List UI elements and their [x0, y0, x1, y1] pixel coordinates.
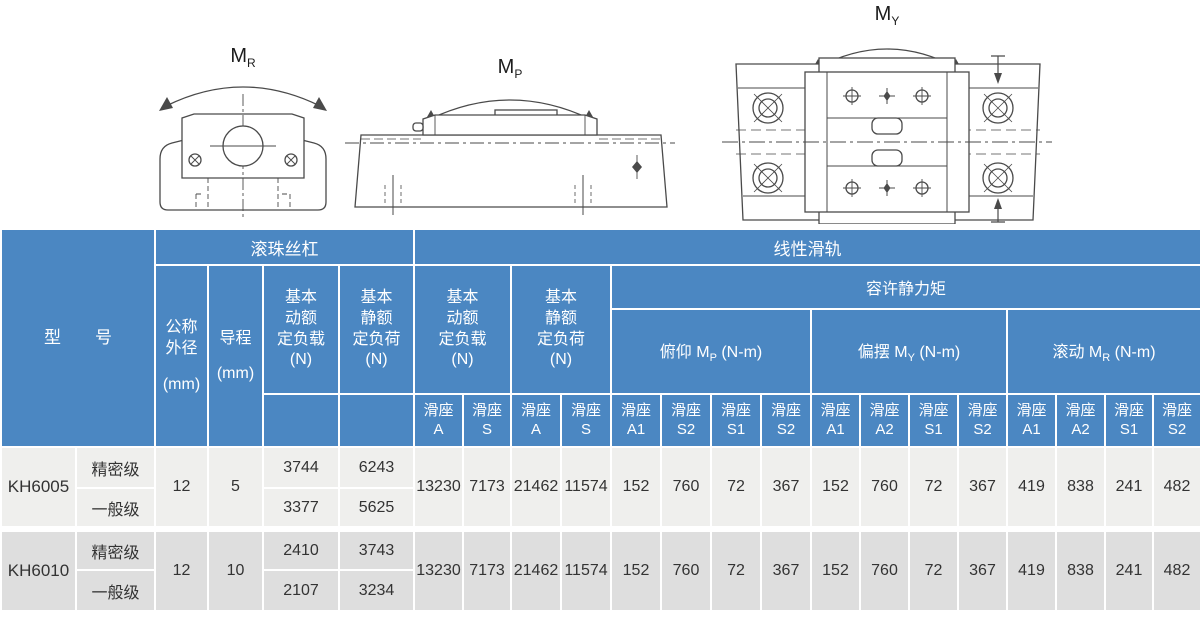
value-cell: 2410	[263, 529, 339, 570]
header-slide-col: 滑座 S2	[1153, 394, 1200, 447]
roll-moment-label: MR	[148, 44, 338, 68]
value-cell: 367	[958, 529, 1007, 611]
moment-roll-prefix: 滚动 M	[1052, 344, 1102, 361]
value-cell: 11574	[561, 529, 611, 611]
header-slide-col: 滑座 S	[561, 394, 611, 447]
value-cell: 3744	[263, 447, 339, 488]
header-lg-static: 基本 静额 定负荷 (N)	[511, 265, 611, 394]
moment-yaw-sub: Y	[908, 353, 915, 365]
grade-cell: 精密级	[76, 529, 155, 570]
header-static-moment-group: 容许静力矩	[611, 265, 1200, 309]
moment-letter: M	[230, 45, 247, 67]
value-cell: 21462	[511, 447, 561, 529]
header-lead-text: 导程	[219, 329, 251, 350]
value-cell: 419	[1007, 447, 1056, 529]
value-cell: 241	[1105, 447, 1153, 529]
value-cell: 152	[811, 447, 860, 529]
grade-cell: 一般级	[76, 570, 155, 611]
yaw-moment-label: MY	[722, 2, 1052, 26]
value-cell: 838	[1056, 447, 1105, 529]
value-cell: 6243	[339, 447, 414, 488]
value-cell: 152	[611, 447, 661, 529]
value-cell: 3234	[339, 570, 414, 611]
value-cell: 152	[611, 529, 661, 611]
header-model-text: 型 号	[44, 328, 112, 347]
value-cell: 367	[761, 447, 811, 529]
header-slide-col: 滑座 A	[414, 394, 463, 447]
value-cell: 13230	[414, 447, 463, 529]
table-row: KH6010 精密级 12 10 2410 3743 13230 7173 21…	[1, 529, 1200, 570]
value-cell: 5625	[339, 488, 414, 529]
value-cell: 7173	[463, 447, 511, 529]
header-slide-col: 滑座 S	[463, 394, 511, 447]
moment-pitch-suffix: (N-m)	[717, 344, 762, 361]
header-slide-col: 滑座 S2	[761, 394, 811, 447]
grade-cell: 精密级	[76, 447, 155, 488]
value-cell: 21462	[511, 529, 561, 611]
roll-moment-diagram: MR	[148, 44, 338, 226]
value-cell: 838	[1056, 529, 1105, 611]
header-slide-col: 滑座 A1	[611, 394, 661, 447]
value-cell: 367	[761, 529, 811, 611]
value-cell: 482	[1153, 447, 1200, 529]
moment-roll-sub: R	[1102, 353, 1110, 365]
header-slide-col: 滑座 A2	[860, 394, 909, 447]
header-group-linear-guide: 线性滑轨	[414, 229, 1200, 265]
value-cell: 367	[958, 447, 1007, 529]
header-slide-col: 滑座 A2	[1056, 394, 1105, 447]
moment-subscript: R	[247, 56, 256, 70]
moment-subscript: P	[514, 67, 522, 81]
header-moment-yaw: 偏摆 MY (N-m)	[811, 309, 1007, 394]
lead-cell: 5	[208, 447, 263, 529]
pitch-moment-label: MP	[345, 55, 675, 79]
spec-table: 型 号 滚珠丝杠 线性滑轨 公称 外径(mm) 导程(mm) 基本 动额 定负载…	[0, 228, 1200, 612]
model-cell: KH6005	[1, 447, 76, 529]
yaw-moment-diagram: MY	[722, 2, 1052, 224]
model-cell: KH6010	[1, 529, 76, 611]
header-nominal-od-unit: (mm)	[163, 376, 200, 394]
value-cell: 482	[1153, 529, 1200, 611]
header-lg-dynamic: 基本 动额 定负载 (N)	[414, 265, 511, 394]
value-cell: 760	[860, 529, 909, 611]
value-cell: 7173	[463, 529, 511, 611]
value-cell: 152	[811, 529, 860, 611]
header-nominal-od: 公称 外径(mm)	[155, 265, 208, 447]
header-slide-col: 滑座 S1	[711, 394, 761, 447]
value-cell: 72	[909, 529, 958, 611]
value-cell: 2107	[263, 570, 339, 611]
header-group-ball-screw: 滚珠丝杠	[155, 229, 414, 265]
carriage-end-view-drawing	[148, 68, 338, 224]
lead-cell: 10	[208, 529, 263, 611]
moment-yaw-suffix: (N-m)	[915, 344, 960, 361]
value-cell: 3743	[339, 529, 414, 570]
page: MR MP	[0, 0, 1200, 637]
value-cell: 11574	[561, 447, 611, 529]
header-moment-roll: 滚动 MR (N-m)	[1007, 309, 1200, 394]
grade-cell: 一般级	[76, 488, 155, 529]
value-cell: 13230	[414, 529, 463, 611]
table-row: KH6005 精密级 12 5 3744 6243 13230 7173 214…	[1, 447, 1200, 488]
value-cell: 760	[661, 529, 711, 611]
header-slide-col: 滑座 S2	[958, 394, 1007, 447]
value-cell: 419	[1007, 529, 1056, 611]
moment-roll-suffix: (N-m)	[1110, 344, 1155, 361]
header-bs-dynamic: 基本 动额 定负载 (N)	[263, 265, 339, 394]
header-slide-col: 滑座 S1	[909, 394, 958, 447]
moment-letter: M	[875, 3, 892, 25]
value-cell: 241	[1105, 529, 1153, 611]
moment-letter: M	[498, 56, 515, 78]
rail-top-view-drawing	[722, 26, 1052, 224]
header-empty-cell	[339, 394, 414, 447]
value-cell: 760	[860, 447, 909, 529]
value-cell: 72	[711, 447, 761, 529]
rail-side-view-drawing	[345, 79, 675, 221]
header-model: 型 号	[1, 229, 155, 447]
moment-pitch-sub: P	[710, 353, 717, 365]
od-cell: 12	[155, 447, 208, 529]
moment-yaw-prefix: 偏摆 M	[858, 344, 908, 361]
od-cell: 12	[155, 529, 208, 611]
value-cell: 760	[661, 447, 711, 529]
header-lead-unit: (mm)	[217, 365, 254, 383]
moment-pitch-prefix: 俯仰 M	[660, 344, 710, 361]
value-cell: 72	[909, 447, 958, 529]
header-moment-pitch: 俯仰 MP (N-m)	[611, 309, 811, 394]
header-empty-cell	[263, 394, 339, 447]
header-slide-col: 滑座 A1	[811, 394, 860, 447]
moment-subscript: Y	[891, 14, 899, 28]
value-cell: 3377	[263, 488, 339, 529]
value-cell: 72	[711, 529, 761, 611]
header-bs-static: 基本 静额 定负荷 (N)	[339, 265, 414, 394]
pitch-moment-diagram: MP	[345, 55, 675, 223]
header-lead: 导程(mm)	[208, 265, 263, 447]
header-slide-col: 滑座 S1	[1105, 394, 1153, 447]
header-slide-col: 滑座 S2	[661, 394, 711, 447]
header-slide-col: 滑座 A	[511, 394, 561, 447]
header-nominal-od-text: 公称 外径	[165, 318, 197, 360]
header-slide-col: 滑座 A1	[1007, 394, 1056, 447]
